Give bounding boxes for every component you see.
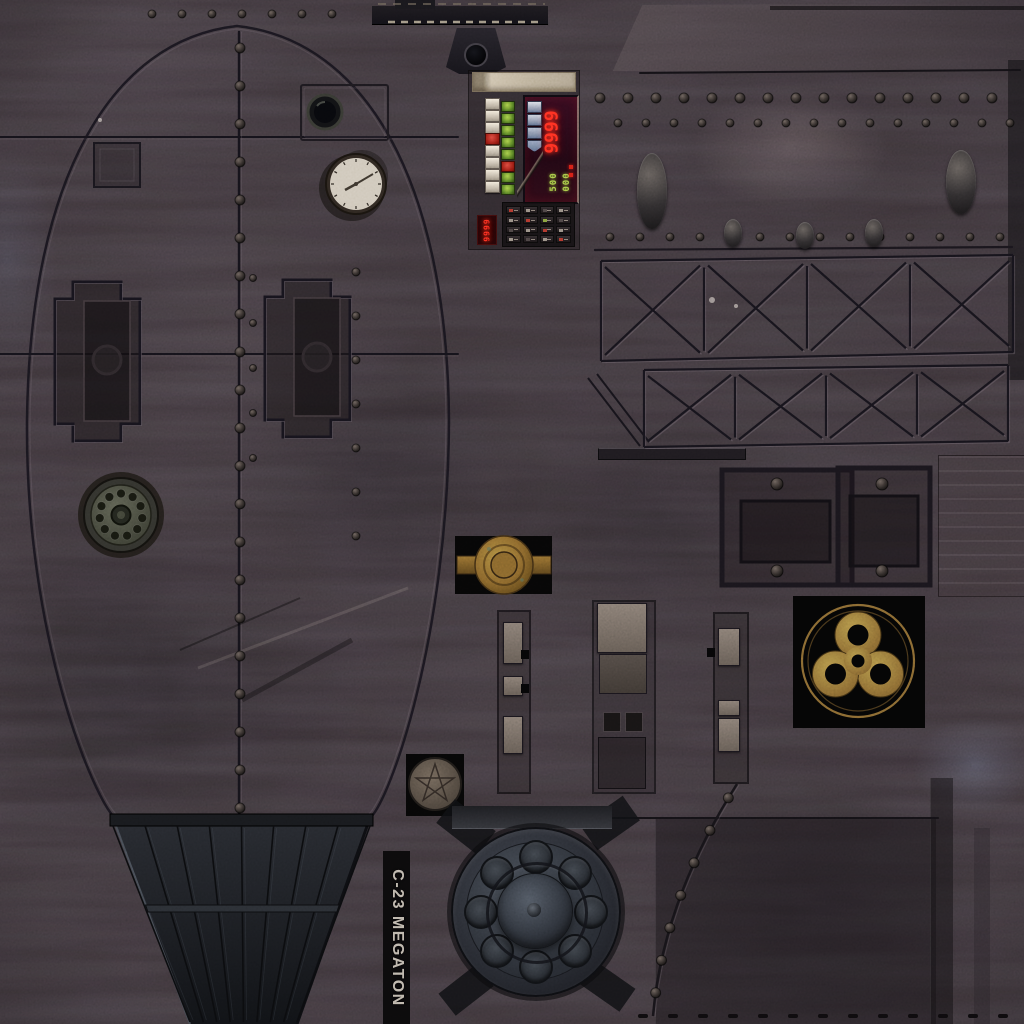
rivet <box>235 727 245 737</box>
rivet <box>906 233 914 241</box>
dial-hole <box>105 493 114 502</box>
tail-fin-assembly <box>110 814 373 1024</box>
dial-hole <box>133 525 142 534</box>
rivet <box>642 119 650 127</box>
tail-bolt-plate <box>448 800 624 1024</box>
stepped-hatch-left <box>55 282 142 443</box>
keypad-indicator <box>509 238 513 241</box>
keypad-button[interactable] <box>540 216 555 224</box>
keypad-button[interactable] <box>556 226 571 234</box>
keypad-button[interactable] <box>540 226 555 234</box>
rivet <box>235 765 245 775</box>
keypad-button[interactable] <box>506 216 521 224</box>
rivet <box>250 365 257 372</box>
rivet <box>352 312 360 320</box>
rivet <box>235 499 245 509</box>
rivet <box>235 271 245 281</box>
rivet <box>1006 119 1014 127</box>
rivet <box>931 93 941 103</box>
keypad-button[interactable] <box>506 226 521 234</box>
dial-hole <box>138 514 147 523</box>
rivet <box>756 233 764 241</box>
hull-bump-large <box>637 153 667 229</box>
keypad-indicator <box>526 219 530 222</box>
rivet <box>875 93 885 103</box>
keypad-indicator <box>543 209 547 212</box>
dial-hole <box>123 531 132 540</box>
panel-button-white[interactable] <box>485 145 500 157</box>
rivet <box>754 119 762 127</box>
rivet <box>352 444 360 452</box>
keypad-tick <box>547 220 551 221</box>
rivet <box>763 93 773 103</box>
keypad-button[interactable] <box>523 216 538 224</box>
rivet <box>235 613 245 623</box>
keypad-indicator <box>543 219 547 222</box>
dome-nub <box>527 903 541 917</box>
rivet <box>178 10 186 18</box>
rivet <box>966 233 974 241</box>
rivet <box>352 268 360 276</box>
rivet <box>235 651 245 661</box>
scratches <box>180 374 649 700</box>
keypad-tick <box>547 210 551 211</box>
cross-brace-bands <box>601 255 1015 449</box>
rivet <box>838 119 846 127</box>
rivet <box>707 93 717 103</box>
rivet <box>595 93 605 103</box>
rivet <box>235 157 245 167</box>
keypad-indicator <box>526 209 530 212</box>
biohazard-symbol <box>793 596 925 728</box>
keypad-indicator <box>509 229 513 232</box>
display-step-button[interactable] <box>527 127 542 139</box>
keypad-indicator <box>559 229 563 232</box>
keypad-button[interactable] <box>556 216 571 224</box>
keypad-tick <box>514 220 518 221</box>
rivet <box>268 10 276 18</box>
display-indicator-dots <box>569 165 575 179</box>
rivet <box>735 93 745 103</box>
arming-control-panel: 9999 500 000 9999 <box>468 70 578 248</box>
rivet <box>250 410 257 417</box>
keypad-indicator <box>559 209 563 212</box>
rivet <box>250 275 257 282</box>
rivet <box>846 233 854 241</box>
keypad-indicator <box>509 219 513 222</box>
hull-bump-small <box>865 219 883 247</box>
display-indicator <box>569 173 573 177</box>
dial-hole <box>111 531 120 540</box>
keypad-tick <box>531 220 535 221</box>
dial-hole <box>117 489 126 498</box>
rivet <box>936 233 944 241</box>
rivet <box>235 309 245 319</box>
rivet <box>235 385 245 395</box>
rivet <box>894 119 902 127</box>
rivet <box>352 356 360 364</box>
keypad-tick <box>547 229 551 230</box>
rivet <box>235 43 245 53</box>
panel-button-white[interactable] <box>485 181 500 193</box>
keypad-indicator <box>509 209 513 212</box>
keypad-button[interactable] <box>506 206 521 214</box>
stepped-hatch-right <box>265 280 352 439</box>
panel-button-green[interactable] <box>501 125 515 136</box>
dashed-alignment-marks <box>378 4 545 22</box>
side-display-value: 9999 <box>483 218 492 241</box>
keypad-tick <box>564 210 568 211</box>
rivet <box>656 955 666 965</box>
rivet <box>606 233 614 241</box>
keypad-tick <box>514 239 518 240</box>
rivet <box>705 825 715 835</box>
rivet <box>235 537 245 547</box>
rotary-dial[interactable] <box>78 472 164 558</box>
keypad-button[interactable] <box>540 206 555 214</box>
panel-button-green[interactable] <box>501 113 515 124</box>
rivet <box>352 488 360 496</box>
rivet <box>922 119 930 127</box>
rivet <box>651 988 661 998</box>
keypad-button[interactable] <box>556 206 571 214</box>
rivet <box>636 233 644 241</box>
keypad <box>502 202 575 247</box>
keypad-button[interactable] <box>540 235 555 243</box>
panel-button-green[interactable] <box>501 172 515 183</box>
rivet <box>328 10 336 18</box>
keypad-button[interactable] <box>506 235 521 243</box>
panel-button-green[interactable] <box>501 149 515 160</box>
display-step-button[interactable] <box>527 101 542 113</box>
rivet <box>238 10 246 18</box>
keypad-button[interactable] <box>523 206 538 214</box>
bomb-designation-label: C-23 MEGATON <box>388 869 406 1006</box>
rivet <box>670 119 678 127</box>
panel-button-green[interactable] <box>501 184 515 195</box>
rivet <box>235 575 245 585</box>
rivet <box>666 233 674 241</box>
keypad-tick <box>564 220 568 221</box>
rivet <box>250 455 257 462</box>
rivet <box>235 119 245 129</box>
rivet <box>810 119 818 127</box>
keypad-tick <box>514 229 518 230</box>
keypad-tick <box>564 229 568 230</box>
panel-button-red[interactable] <box>485 133 500 145</box>
rivet <box>235 233 245 243</box>
clock-gauge <box>319 150 388 221</box>
dial-hole <box>100 525 109 534</box>
keypad-tick <box>531 229 535 230</box>
rivet <box>235 81 245 91</box>
keypad-tick <box>547 239 551 240</box>
rivet <box>698 119 706 127</box>
rivet <box>959 93 969 103</box>
rivet <box>298 10 306 18</box>
rivet <box>352 400 360 408</box>
rivet <box>665 923 675 933</box>
rivet <box>623 93 633 103</box>
brass-valve-hub[interactable] <box>455 536 552 594</box>
display-bezel-corner <box>517 146 543 202</box>
rivet <box>816 233 824 241</box>
panel-button-red[interactable] <box>501 161 515 172</box>
keypad-indicator <box>526 229 530 232</box>
rivet <box>352 532 360 540</box>
keypad-tick <box>531 210 535 211</box>
keypad-indicator <box>559 219 563 222</box>
rivet <box>786 233 794 241</box>
code-side-display: 9999 <box>477 215 497 245</box>
main-display-value: 9999 <box>542 110 563 153</box>
panel-button-white[interactable] <box>485 157 500 169</box>
dial-hole <box>97 502 106 511</box>
keypad-indicator <box>559 238 563 241</box>
panel-button-green[interactable] <box>501 137 515 148</box>
rivet <box>689 858 699 868</box>
dial-hole <box>95 514 104 523</box>
display-indicator <box>569 165 573 169</box>
keypad-tick <box>564 239 568 240</box>
rivet <box>696 233 704 241</box>
rivet <box>235 689 245 699</box>
keypad-button[interactable] <box>556 235 571 243</box>
porthole-window <box>308 95 342 129</box>
rivet <box>978 119 986 127</box>
rivet <box>148 10 156 18</box>
rivet <box>987 93 997 103</box>
keypad-indicator <box>526 238 530 241</box>
stencil-label-strip: C-23 MEGATON <box>383 851 410 1024</box>
rivet <box>819 93 829 103</box>
keypad-indicator <box>543 238 547 241</box>
panel-top-plate <box>472 72 576 92</box>
panel-button-white[interactable] <box>485 110 500 122</box>
rivet <box>996 233 1004 241</box>
panel-button-white[interactable] <box>485 169 500 181</box>
hull-bump-small <box>724 219 742 247</box>
panel-button-white[interactable] <box>485 98 500 110</box>
rivet <box>235 461 245 471</box>
rivet <box>235 803 245 813</box>
rivet <box>676 890 686 900</box>
keypad-indicator <box>543 229 547 232</box>
recessed-frame-left <box>722 470 852 585</box>
rivet <box>235 423 245 433</box>
rivet <box>235 195 245 205</box>
aux-display-line1: 500 <box>549 172 559 191</box>
hull-bump-small <box>796 222 814 249</box>
hull-bump-large <box>946 150 976 214</box>
keypad-tick <box>514 210 518 211</box>
rivet <box>847 93 857 103</box>
rivet <box>614 119 622 127</box>
panel-button-white[interactable] <box>485 122 500 134</box>
rivet <box>950 119 958 127</box>
dial-hole <box>136 502 145 511</box>
panel-button-green[interactable] <box>501 101 515 112</box>
rivet <box>782 119 790 127</box>
rivet <box>791 93 801 103</box>
rivet <box>723 793 733 803</box>
rivet <box>726 119 734 127</box>
rivet <box>866 119 874 127</box>
small-hatch <box>94 143 140 187</box>
keypad-tick <box>531 239 535 240</box>
keypad-button[interactable] <box>523 235 538 243</box>
rivet <box>679 93 689 103</box>
rivet <box>208 10 216 18</box>
rivet <box>903 93 913 103</box>
dial-hole <box>128 493 137 502</box>
keypad-button[interactable] <box>523 226 538 234</box>
switch-column-white <box>485 98 499 224</box>
bomb-texture-sheet: 9999 500 000 9999 C-23 MEGATON <box>0 0 1024 1024</box>
rivet <box>250 320 257 327</box>
rivet <box>235 347 245 357</box>
display-step-button[interactable] <box>527 114 542 126</box>
rivet <box>651 93 661 103</box>
